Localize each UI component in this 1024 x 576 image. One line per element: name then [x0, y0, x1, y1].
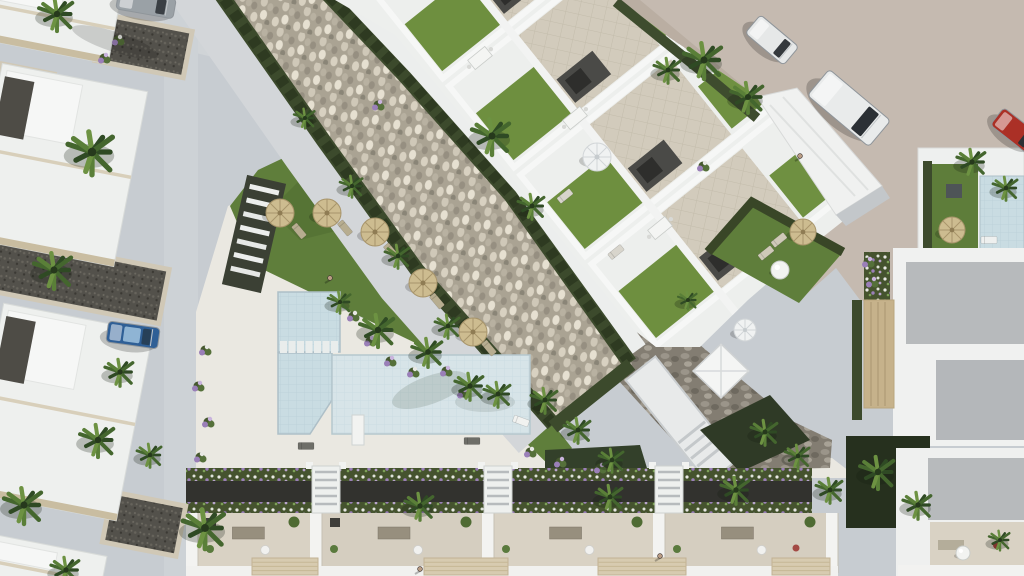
potted-plant — [502, 545, 510, 553]
sphere-lamp — [414, 546, 423, 555]
pool-stepping-stones — [280, 341, 338, 353]
potted-plant — [330, 545, 338, 553]
pergola-roof — [898, 565, 1024, 576]
pergola — [772, 558, 830, 575]
wood-deck — [864, 300, 894, 408]
gray-flat-roof — [928, 458, 1024, 520]
pergola — [424, 558, 508, 575]
red-plant — [793, 545, 800, 552]
render-canvas — [0, 0, 1024, 576]
sphere-lamp — [757, 546, 766, 555]
potted-plant — [289, 517, 300, 528]
dining-table — [550, 527, 582, 539]
pergola — [252, 558, 318, 575]
barbecue — [330, 518, 340, 527]
sphere-lamp — [585, 546, 594, 555]
gray-flat-roof — [906, 262, 1024, 344]
walkway-stairs — [306, 462, 346, 513]
aerial-render: Aerial 3D render of a residential develo… — [0, 0, 1024, 576]
sun-lounger — [298, 443, 314, 450]
walkway-stairs — [478, 462, 518, 513]
potted-plant — [461, 517, 472, 528]
potted-plant — [673, 545, 681, 553]
hedge-strip — [852, 300, 862, 420]
pergola — [598, 558, 686, 575]
dining-table — [378, 527, 410, 539]
gray-flat-roof — [936, 360, 1024, 440]
potted-plant — [632, 517, 643, 528]
potted-plant — [805, 517, 816, 528]
walkway-stairs — [649, 462, 689, 513]
dining-table — [232, 527, 264, 539]
hot-tub — [946, 184, 962, 198]
pool-platform — [352, 415, 364, 445]
dining-table — [721, 527, 753, 539]
sphere-lamp — [261, 546, 270, 555]
sun-lounger — [464, 438, 480, 445]
sun-lounger — [981, 237, 997, 244]
